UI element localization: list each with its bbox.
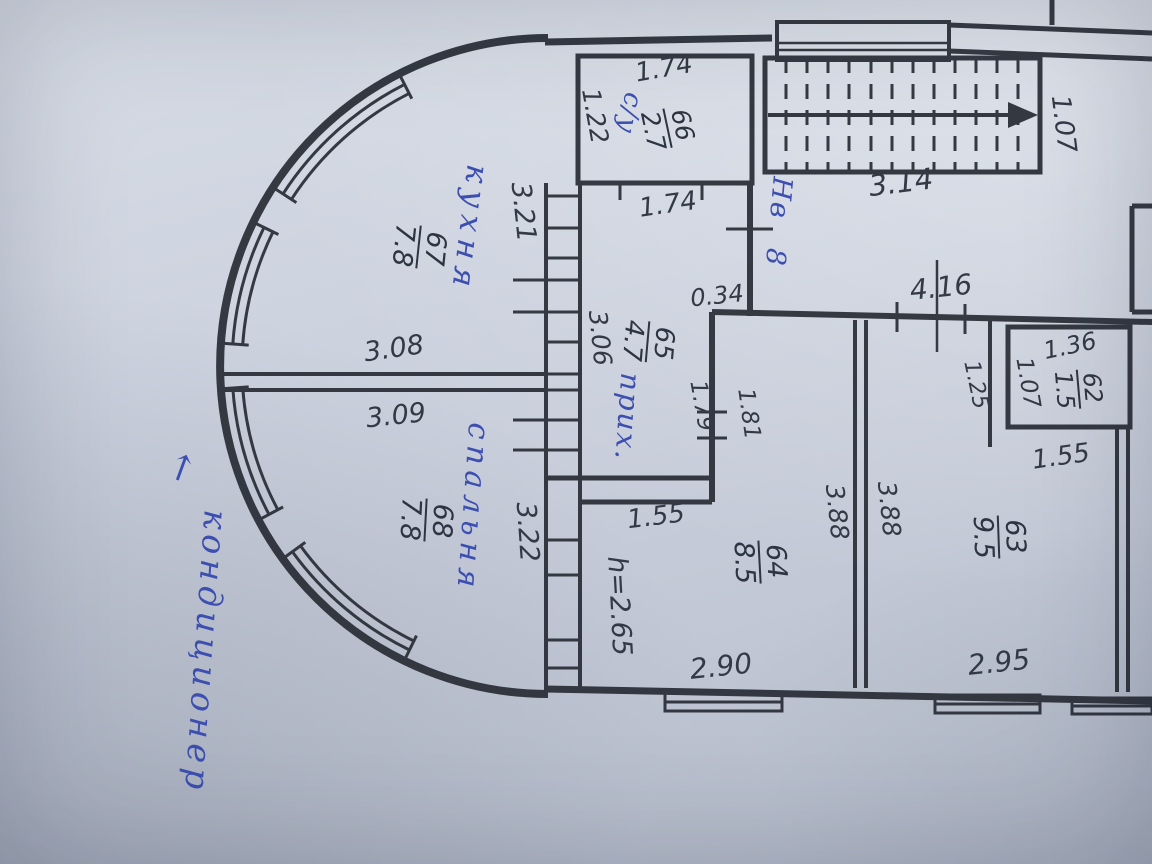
dimension-hall-width-top: 1.74 — [637, 188, 698, 222]
room-number: 63 — [997, 515, 1029, 558]
dimension-wc-bottom: 1.55 — [1030, 440, 1091, 474]
room-number: 65 — [645, 321, 678, 365]
dimension-hall-side: 1.79 — [685, 379, 717, 434]
room-number: 68 — [424, 499, 457, 543]
handwritten-note-aircon-arrow: ↑ — [161, 448, 202, 493]
room-number: 62 — [1075, 367, 1106, 408]
dimension-room63-width: 2.95 — [967, 646, 1032, 681]
room-label-68: 687.8 — [395, 497, 456, 543]
handwritten-note-aircon: кондиционер — [179, 509, 232, 796]
dimension-kitchen-width: 3.08 — [362, 331, 425, 367]
handwritten-note-nv8: Нв 8 — [760, 175, 795, 268]
room-label-63: 639.5 — [969, 515, 1030, 560]
room-label-62: 621.5 — [1050, 367, 1106, 410]
handwritten-note-su: с/у — [612, 90, 647, 136]
dimension-room64-width: 2.90 — [689, 650, 754, 685]
dimension-wc-width: 1.36 — [1041, 328, 1098, 363]
dimension-kitchen-east-wall: 3.21 — [506, 181, 540, 244]
floorplan-photo: 1.741.221.743.213.083.093.223.060.341.79… — [0, 0, 1152, 864]
dimension-bedroom-width: 3.09 — [365, 399, 428, 433]
room-label-66: 662.7 — [637, 103, 699, 153]
room-label-65: 654.7 — [618, 319, 678, 365]
dimension-su-width-top: 1.74 — [633, 51, 695, 87]
room-number: 64 — [758, 539, 791, 583]
dimension-stub-width: 0.34 — [689, 281, 745, 311]
dimension-stairs-length: 3.14 — [867, 164, 935, 201]
dimension-room64-step: 1.55 — [626, 500, 687, 533]
dimension-room63-depth: 3.88 — [873, 480, 904, 538]
handwritten-note-bedroom: спальня — [451, 422, 493, 595]
handwritten-note-hallway: прих. — [610, 372, 645, 462]
dimension-stairs-width: 1.07 — [1046, 94, 1079, 155]
room-label-64: 648.5 — [729, 539, 790, 585]
dimension-shaft-width: 1.25 — [959, 359, 991, 412]
dimension-room64-side: 1.81 — [733, 387, 763, 441]
room-area: 4.7 — [618, 319, 649, 363]
dimension-wc-depth: 1.07 — [1011, 356, 1043, 411]
room-area: 1.5 — [1050, 370, 1079, 410]
dimension-hall-length: 3.06 — [584, 309, 615, 367]
room-number: 67 — [416, 226, 451, 271]
dimension-ceiling-height: h=2.65 — [603, 555, 636, 656]
dimension-corridor-length: 4.16 — [909, 271, 974, 306]
handwritten-note-kitchen: кухня — [445, 163, 492, 296]
room-area: 8.5 — [729, 541, 760, 585]
room-area: 7.8 — [387, 223, 420, 269]
room-area: 7.8 — [395, 497, 426, 541]
room-area: 9.5 — [969, 516, 999, 560]
dimension-bedroom-east-wall: 3.22 — [511, 501, 543, 563]
dimension-room64-depth: 3.88 — [821, 483, 852, 541]
room-label-67: 677.8 — [387, 223, 450, 272]
label-layer: 1.741.221.743.213.083.093.223.060.341.79… — [0, 0, 1152, 864]
dimension-su-depth: 1.22 — [578, 86, 613, 145]
